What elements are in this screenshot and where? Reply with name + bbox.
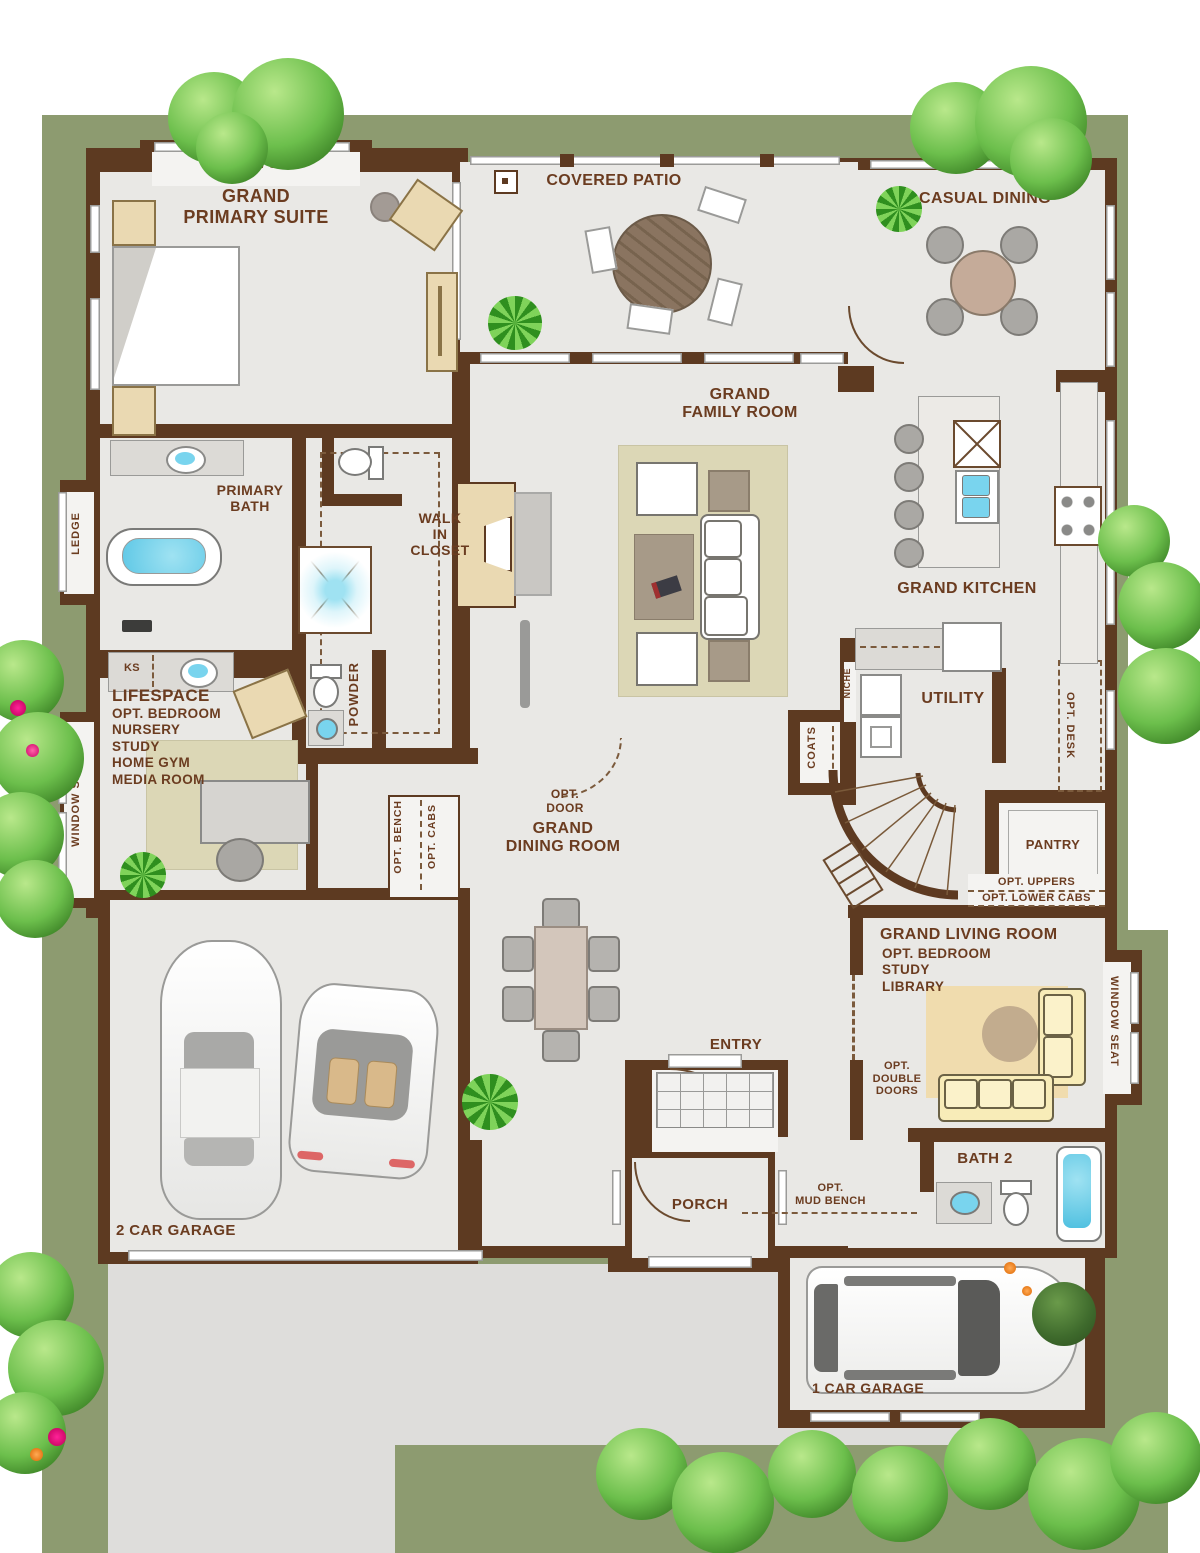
label-line: MUD BENCH	[758, 1195, 903, 1208]
washer	[860, 674, 902, 716]
window	[90, 298, 100, 390]
window	[1106, 690, 1115, 750]
sink-bowl	[962, 497, 990, 518]
cooktop	[1054, 486, 1102, 546]
patio-corner-post	[494, 170, 518, 194]
dresser-handle	[438, 286, 442, 356]
book	[651, 575, 682, 599]
barstool	[894, 424, 924, 454]
floor-hall-bottom-left	[482, 1137, 625, 1246]
tree	[768, 1430, 856, 1518]
dining-table	[534, 926, 588, 1030]
dining-chair	[502, 986, 534, 1022]
tree	[852, 1446, 948, 1542]
wall-utility-right	[992, 668, 1006, 763]
range-box	[953, 420, 1001, 468]
label-bath2: BATH 2	[930, 1150, 1040, 1167]
window	[1106, 420, 1115, 520]
label-window-seat-right: WINDOW SEAT	[1108, 976, 1120, 1067]
label-family-room: GRAND FAMILY ROOM	[650, 386, 830, 423]
label-line: WALK	[386, 510, 494, 526]
tree	[1118, 562, 1200, 650]
window	[900, 1412, 980, 1422]
media-cabinet	[514, 492, 552, 596]
desk	[200, 780, 310, 844]
window	[704, 353, 794, 363]
shower	[298, 546, 372, 634]
car-seat	[326, 1057, 360, 1105]
window	[612, 1170, 621, 1225]
rear-window	[184, 1138, 254, 1166]
label-line: BATH	[192, 498, 308, 514]
tail-light	[389, 1159, 416, 1169]
side-window	[844, 1370, 956, 1380]
palm-plant	[876, 186, 922, 232]
label-line: GRAND	[650, 386, 830, 404]
sink-bowl	[316, 718, 338, 740]
flowers	[1004, 1262, 1016, 1274]
post-dot	[502, 178, 508, 184]
tree	[196, 112, 268, 184]
mud-bench-line	[742, 1212, 917, 1214]
entry-door-opening	[668, 1054, 742, 1068]
garage2-door	[128, 1250, 483, 1261]
windshield	[958, 1280, 1000, 1376]
wall-wic-bottom	[292, 748, 478, 764]
label-line: OPT.	[530, 788, 600, 802]
counter	[855, 628, 947, 670]
tree	[1118, 648, 1200, 744]
label-opt-desk: OPT. DESK	[1064, 692, 1076, 759]
label-pantry: PANTRY	[1008, 838, 1098, 853]
sofa	[700, 514, 760, 640]
patio-family-door	[800, 353, 844, 364]
label-primary-suite: GRAND PRIMARY SUITE	[140, 186, 372, 227]
window	[58, 492, 67, 592]
bath2-toilet	[998, 1180, 1030, 1228]
bath-amenity	[122, 620, 152, 632]
refrigerator	[942, 622, 1002, 672]
sink-bowl	[188, 664, 208, 678]
round-table	[982, 1006, 1038, 1062]
counter-line	[860, 646, 940, 648]
bed	[112, 246, 240, 386]
patio-post	[760, 154, 774, 167]
tree	[1010, 118, 1092, 200]
windshield	[184, 1032, 254, 1072]
label-opt-cabs: OPT. CABS	[426, 804, 438, 869]
label-opt-uppers: OPT. UPPERS OPT. LOWER CABS	[968, 876, 1105, 907]
toilet-bowl	[338, 448, 372, 476]
label-2-car-garage: 2 CAR GARAGE	[116, 1222, 336, 1239]
flowers	[1022, 1286, 1032, 1296]
patio-post	[560, 154, 574, 167]
cushion	[1043, 1036, 1073, 1078]
car-sports	[286, 980, 442, 1181]
flowers	[30, 1448, 43, 1461]
label-line: FAMILY ROOM	[650, 404, 830, 422]
label-grand-living: GRAND LIVING ROOM	[880, 926, 1100, 944]
label-grand-kitchen: GRAND KITCHEN	[872, 580, 1062, 598]
tree	[944, 1418, 1036, 1510]
bush	[1032, 1282, 1096, 1346]
label-niche: NICHE	[842, 668, 852, 699]
dining-chair	[926, 226, 964, 264]
label-line: DOORS	[858, 1085, 936, 1098]
label-line: GRAND	[478, 820, 648, 838]
label-line: CLOSET	[386, 542, 494, 558]
label-dining-room: GRAND DINING ROOM	[478, 820, 648, 857]
car-seat	[364, 1060, 398, 1108]
label-lifespace: LIFESPACE	[112, 686, 302, 706]
window	[592, 353, 682, 363]
armchair	[636, 632, 698, 686]
window	[1106, 205, 1115, 280]
nightstand	[112, 386, 156, 436]
label-line: OPT. LOWER CABS	[968, 892, 1105, 908]
side-window	[844, 1276, 956, 1286]
flowers	[10, 700, 26, 716]
porch-front-opening	[648, 1256, 752, 1268]
label-line: OPT. BEDROOM	[112, 706, 302, 722]
tub-water	[122, 538, 206, 574]
palm-plant	[462, 1074, 518, 1130]
sofa	[938, 1074, 1054, 1122]
tv-panel	[520, 620, 530, 708]
dryer-door	[870, 726, 892, 748]
label-utility: UTILITY	[898, 690, 1008, 708]
patio-post	[660, 154, 674, 167]
floor-plan: WINDOW SEAT GRAND PRIMARY SUITE COVERED …	[0, 0, 1200, 1553]
sink-bowl	[950, 1191, 980, 1215]
label-line: OPT. BEDROOM	[882, 946, 1072, 962]
label-powder: POWDER	[346, 662, 361, 727]
label-line: STUDY	[112, 739, 302, 755]
label-covered-patio: COVERED PATIO	[524, 172, 704, 190]
window	[90, 205, 100, 253]
wc-toilet	[338, 446, 382, 476]
dining-chair	[502, 936, 534, 972]
patio-top-beam	[470, 156, 840, 165]
toilet-bowl	[313, 676, 339, 708]
bed-fold	[114, 248, 156, 378]
rear-window	[814, 1284, 838, 1372]
ks-divider	[152, 655, 154, 687]
palm-plant	[488, 296, 542, 350]
palm-plant	[120, 852, 166, 898]
label-ks: KS	[114, 662, 150, 675]
label-line: DOOR	[530, 802, 600, 816]
side-table	[708, 640, 750, 682]
entry-tile-grid	[656, 1072, 774, 1128]
label-porch: PORCH	[650, 1196, 750, 1213]
label-living-opts: OPT. BEDROOM STUDY LIBRARY	[882, 946, 1072, 995]
dining-chair	[588, 936, 620, 972]
barstool	[894, 462, 924, 492]
window	[810, 1412, 890, 1422]
label-coats: COATS	[806, 726, 818, 769]
label-opt-door: OPT. DOOR	[530, 788, 600, 816]
casual-dining-table	[950, 250, 1016, 316]
cushion	[978, 1079, 1012, 1109]
label-line: PRIMARY	[192, 482, 308, 498]
dining-chair	[542, 1030, 580, 1062]
label-line: GRAND	[140, 186, 372, 207]
dresser	[426, 272, 458, 372]
island-sink	[955, 470, 999, 524]
label-line: IN	[386, 526, 494, 542]
wall-coats-top	[788, 710, 842, 722]
flowers	[26, 744, 39, 757]
car-sedan	[160, 940, 282, 1220]
powder-sink-cabinet	[308, 710, 344, 746]
barstool	[894, 500, 924, 530]
window	[1130, 1032, 1139, 1084]
dining-chair	[588, 986, 620, 1022]
wall-casual-stub-left	[838, 366, 874, 392]
label-line: NURSERY	[112, 722, 302, 738]
patio-table	[612, 214, 712, 314]
tree	[672, 1452, 774, 1553]
sofa-cushion	[704, 520, 742, 558]
driveway-lower	[108, 1445, 395, 1553]
label-mud-bench: OPT. MUD BENCH	[758, 1182, 903, 1207]
window	[480, 353, 570, 363]
label-line: PRIMARY SUITE	[140, 207, 372, 228]
car-glass	[311, 1028, 414, 1122]
label-1-car-garage: 1 CAR GARAGE	[812, 1380, 992, 1396]
tree	[1110, 1412, 1200, 1504]
opt-double-doors-opening	[852, 975, 855, 1060]
label-line: HOME GYM	[112, 755, 302, 771]
loveseat	[1038, 988, 1086, 1086]
bath2-vanity	[936, 1182, 992, 1224]
ks-sink	[180, 658, 218, 688]
label-line: DINING ROOM	[478, 838, 648, 856]
powder-toilet	[310, 664, 338, 706]
desk-chair	[216, 838, 264, 882]
label-line: LIBRARY	[882, 979, 1072, 995]
label-line: OPT. UPPERS	[968, 876, 1105, 892]
armchair	[636, 462, 698, 516]
cushion	[1012, 1079, 1046, 1109]
label-lifespace-opts: OPT. BEDROOM NURSERY STUDY HOME GYM MEDI…	[112, 706, 302, 788]
label-ledge: LEDGE	[70, 512, 82, 555]
sink-bowl	[175, 452, 195, 465]
barstool	[894, 538, 924, 568]
car-roof	[180, 1068, 260, 1138]
dryer	[860, 716, 902, 758]
label-entry: ENTRY	[676, 1036, 796, 1053]
coffee-table	[634, 534, 694, 620]
label-line: OPT.	[858, 1060, 936, 1073]
bathtub	[106, 528, 222, 586]
bath-sink	[166, 446, 206, 474]
flowers	[48, 1428, 66, 1446]
label-line: MEDIA ROOM	[112, 772, 302, 788]
label-primary-bath: PRIMARY BATH	[192, 482, 308, 514]
window	[1106, 292, 1115, 367]
sofa-cushion	[704, 596, 748, 636]
label-walk-in-closet: WALK IN CLOSET	[386, 510, 494, 558]
bathtub2	[1056, 1146, 1102, 1242]
cushion	[1043, 994, 1073, 1036]
side-table	[708, 470, 750, 512]
label-line: OPT.	[758, 1182, 903, 1195]
wall-bath2-top	[908, 1128, 1105, 1142]
label-opt-double-doors: OPT. DOUBLE DOORS	[858, 1060, 936, 1098]
tub-water	[1063, 1154, 1091, 1228]
sink-bowl	[962, 475, 990, 496]
label-opt-bench: OPT. BENCH	[392, 800, 404, 874]
tail-light	[297, 1150, 324, 1160]
label-line: STUDY	[882, 962, 1072, 978]
sofa-cushion	[704, 558, 742, 596]
label-line: DOUBLE	[858, 1073, 936, 1086]
cushion	[944, 1079, 978, 1109]
window	[1130, 972, 1139, 1024]
opt-bench-divider	[420, 800, 422, 890]
toilet-bowl	[1003, 1192, 1029, 1226]
